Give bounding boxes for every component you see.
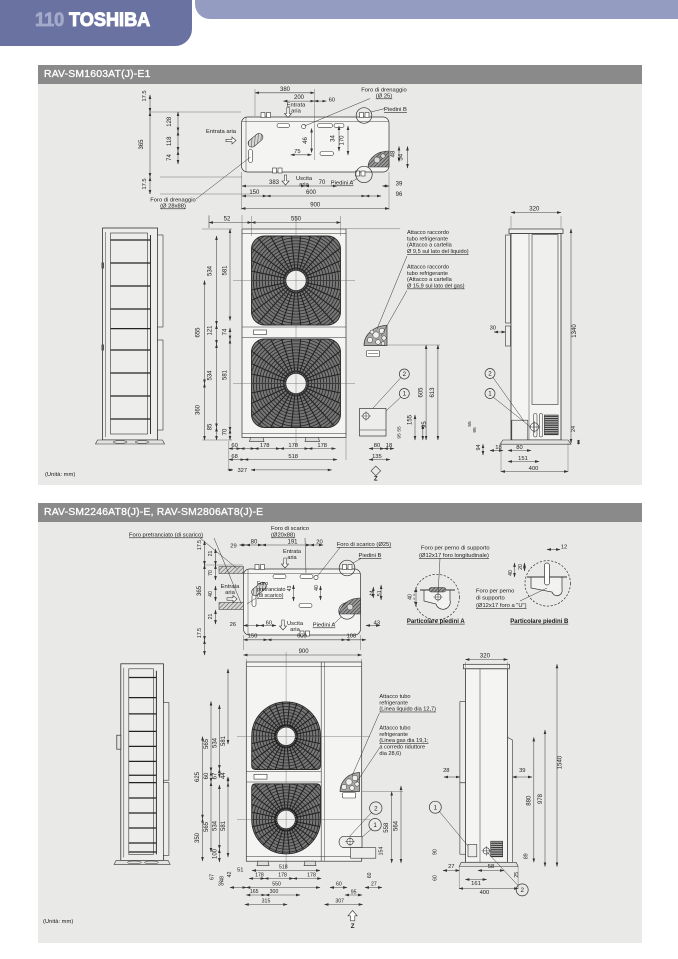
svg-text:581: 581: [222, 265, 228, 276]
svg-text:25: 25: [514, 872, 520, 878]
svg-text:150: 150: [249, 190, 260, 196]
svg-text:17.5: 17.5: [142, 90, 148, 101]
svg-text:315: 315: [262, 899, 271, 905]
svg-text:tubo refrigerante: tubo refrigerante: [407, 271, 448, 277]
svg-text:aria: aria: [290, 627, 300, 633]
svg-text:150: 150: [248, 634, 258, 640]
svg-text:(Unità: mm): (Unità: mm): [43, 919, 73, 925]
svg-text:40: 40: [208, 591, 214, 597]
svg-text:2: 2: [374, 805, 378, 812]
svg-text:165: 165: [250, 889, 259, 895]
svg-text:600: 600: [297, 634, 307, 640]
svg-text:534: 534: [212, 820, 218, 831]
svg-text:27: 27: [371, 882, 377, 888]
svg-text:18: 18: [495, 445, 501, 451]
svg-text:Attacco raccordo: Attacco raccordo: [407, 265, 449, 271]
svg-text:550: 550: [291, 217, 302, 223]
svg-text:Foro per perno: Foro per perno: [476, 589, 514, 595]
svg-text:1: 1: [373, 822, 377, 829]
svg-text:96: 96: [396, 192, 403, 198]
svg-text:80: 80: [374, 443, 380, 449]
svg-text:95: 95: [422, 421, 428, 428]
svg-text:60: 60: [266, 621, 272, 627]
svg-text:tubo refrigerante: tubo refrigerante: [407, 236, 448, 242]
svg-text:178: 178: [278, 873, 287, 879]
svg-text:155: 155: [408, 414, 414, 425]
svg-text:518: 518: [279, 865, 288, 871]
svg-text:581: 581: [221, 735, 227, 746]
svg-text:20: 20: [518, 564, 524, 570]
svg-text:39: 39: [519, 768, 525, 774]
svg-text:40: 40: [314, 585, 320, 591]
svg-text:200: 200: [294, 95, 305, 101]
svg-text:18: 18: [386, 443, 392, 449]
svg-text:Attacco raccordo: Attacco raccordo: [407, 230, 449, 236]
svg-text:360: 360: [196, 404, 202, 415]
svg-text:365: 365: [197, 585, 203, 596]
svg-text:55: 55: [396, 426, 402, 432]
svg-text:900: 900: [310, 203, 321, 209]
svg-text:118: 118: [167, 136, 173, 146]
svg-text:refrigerante: refrigerante: [379, 732, 408, 738]
svg-text:Particolare piedini A: Particolare piedini A: [407, 619, 465, 625]
svg-text:Ø 15,9 sul lato del gas): Ø 15,9 sul lato del gas): [407, 284, 465, 290]
svg-text:154: 154: [378, 847, 384, 856]
svg-text:518: 518: [288, 454, 298, 460]
svg-text:40: 40: [508, 570, 514, 576]
svg-text:94: 94: [476, 445, 482, 451]
svg-text:60: 60: [231, 443, 237, 449]
svg-text:1: 1: [488, 391, 492, 398]
svg-text:613: 613: [430, 387, 436, 398]
svg-text:2: 2: [520, 887, 524, 894]
svg-text:(Linea gas dia 19,1;: (Linea gas dia 19,1;: [379, 738, 429, 744]
svg-text:178: 178: [288, 443, 298, 449]
svg-text:Foro pretranciato (di scarico): Foro pretranciato (di scarico): [129, 533, 203, 539]
svg-text:(Ø 28x88): (Ø 28x88): [160, 204, 186, 210]
svg-text:aria: aria: [299, 182, 309, 188]
svg-text:558: 558: [384, 822, 390, 833]
svg-text:43: 43: [374, 621, 380, 627]
svg-text:900: 900: [299, 649, 310, 655]
svg-text:70: 70: [208, 570, 214, 576]
svg-text:30: 30: [490, 326, 496, 332]
svg-text:80: 80: [251, 539, 258, 545]
svg-text:68: 68: [231, 454, 237, 460]
svg-text:(di scarico): (di scarico): [257, 593, 284, 599]
svg-text:90: 90: [433, 849, 439, 855]
svg-text:1: 1: [434, 804, 438, 811]
svg-text:dia 28,6): dia 28,6): [379, 751, 401, 757]
svg-text:95: 95: [396, 433, 402, 439]
svg-text:(Ø12x17 foro longitudinale): (Ø12x17 foro longitudinale): [419, 553, 489, 559]
svg-text:383: 383: [269, 180, 280, 186]
svg-text:60: 60: [336, 882, 342, 888]
svg-text:Foro di scarico: Foro di scarico: [271, 526, 309, 532]
svg-text:aria: aria: [225, 590, 235, 596]
svg-text:70: 70: [222, 428, 228, 435]
svg-text:58: 58: [488, 864, 494, 870]
svg-text:191: 191: [287, 539, 298, 545]
svg-text:54: 54: [399, 153, 405, 160]
svg-text:170: 170: [340, 135, 346, 146]
svg-text:(Linea liquido dia 12,7): (Linea liquido dia 12,7): [379, 707, 436, 713]
svg-text:655: 655: [196, 327, 202, 338]
svg-text:1: 1: [403, 391, 407, 398]
svg-text:74: 74: [167, 154, 173, 161]
svg-text:60: 60: [329, 97, 335, 103]
svg-text:151: 151: [518, 456, 528, 462]
svg-text:108: 108: [347, 634, 357, 640]
svg-text:(Unità: mm): (Unità: mm): [45, 472, 75, 478]
svg-text:400: 400: [480, 890, 490, 896]
svg-text:67: 67: [210, 874, 216, 880]
svg-text:refrigerante: refrigerante: [379, 700, 408, 706]
svg-text:565: 565: [204, 738, 210, 749]
svg-text:178: 178: [317, 443, 327, 449]
svg-text:26: 26: [230, 622, 236, 628]
svg-text:48: 48: [391, 150, 397, 157]
svg-text:625: 625: [195, 771, 201, 782]
svg-text:300: 300: [270, 889, 279, 895]
svg-text:85: 85: [208, 423, 214, 430]
svg-text:600: 600: [306, 190, 317, 196]
svg-text:178: 178: [307, 873, 316, 879]
svg-text:327: 327: [237, 468, 247, 474]
svg-text:(Attacco a cartella: (Attacco a cartella: [407, 243, 453, 249]
svg-text:Piedini A: Piedini A: [331, 181, 354, 187]
svg-text:320: 320: [480, 654, 491, 660]
svg-text:Z: Z: [374, 476, 378, 483]
svg-text:a corredo riduttore: a corredo riduttore: [379, 745, 425, 751]
svg-text:67: 67: [212, 772, 218, 779]
svg-text:400: 400: [529, 466, 539, 472]
svg-text:1540: 1540: [558, 755, 564, 769]
svg-text:320: 320: [529, 207, 540, 213]
svg-text:161: 161: [471, 881, 481, 887]
svg-text:89: 89: [524, 853, 530, 859]
svg-text:Foro per perno di supporto: Foro per perno di supporto: [421, 546, 490, 552]
svg-text:605: 605: [418, 387, 424, 398]
svg-text:51: 51: [237, 868, 243, 874]
svg-text:880: 880: [527, 795, 533, 806]
svg-text:350: 350: [195, 832, 201, 843]
svg-text:51: 51: [377, 590, 383, 596]
svg-text:55: 55: [467, 421, 473, 427]
svg-text:(Attacco a cartella: (Attacco a cartella: [407, 277, 453, 283]
svg-text:(Ø20x88): (Ø20x88): [271, 533, 295, 539]
svg-text:Attacco tubo: Attacco tubo: [379, 726, 410, 732]
svg-text:43: 43: [287, 586, 293, 592]
svg-text:20: 20: [316, 539, 322, 545]
svg-text:(Ø 25): (Ø 25): [376, 94, 392, 100]
svg-text:42: 42: [227, 872, 233, 878]
svg-text:Particolare piedini B: Particolare piedini B: [510, 619, 569, 625]
svg-text:52: 52: [224, 217, 231, 223]
svg-text:Z: Z: [351, 923, 355, 930]
svg-text:2: 2: [488, 371, 492, 378]
svg-text:307: 307: [335, 899, 344, 905]
svg-text:550: 550: [272, 882, 281, 888]
svg-text:534: 534: [208, 265, 214, 276]
svg-text:Piedini B: Piedini B: [384, 107, 407, 113]
svg-text:365: 365: [139, 139, 145, 150]
svg-text:80: 80: [516, 445, 522, 451]
svg-text:178: 178: [260, 443, 270, 449]
svg-text:34: 34: [331, 135, 337, 142]
svg-text:17.5: 17.5: [197, 540, 203, 550]
svg-text:100: 100: [212, 848, 218, 859]
svg-text:95: 95: [472, 427, 478, 433]
svg-text:27: 27: [448, 864, 454, 870]
svg-text:534: 534: [212, 737, 218, 748]
svg-text:70: 70: [319, 180, 326, 186]
svg-text:74: 74: [222, 328, 228, 335]
svg-text:44: 44: [221, 772, 227, 779]
svg-text:75: 75: [294, 149, 300, 155]
svg-text:564: 564: [394, 820, 400, 831]
svg-text:di supporto: di supporto: [476, 596, 505, 602]
svg-text:1340: 1340: [572, 324, 578, 338]
svg-text:29: 29: [230, 544, 236, 550]
svg-text:aria: aria: [287, 555, 297, 561]
svg-text:380: 380: [280, 87, 291, 93]
svg-text:Entrata aria: Entrata aria: [206, 129, 237, 135]
svg-text:178: 178: [255, 873, 264, 879]
svg-text:Attacco tubo: Attacco tubo: [379, 694, 410, 700]
svg-text:128: 128: [167, 116, 173, 127]
svg-text:581: 581: [221, 820, 227, 831]
svg-text:39: 39: [396, 182, 403, 188]
svg-text:60: 60: [204, 772, 210, 779]
svg-text:135: 135: [372, 454, 382, 460]
svg-text:40: 40: [408, 594, 414, 600]
svg-text:aria: aria: [291, 109, 301, 115]
svg-text:Piedini A: Piedini A: [313, 623, 336, 629]
svg-text:46: 46: [303, 137, 309, 144]
svg-text:12: 12: [561, 545, 567, 551]
svg-text:24: 24: [571, 426, 577, 432]
svg-text:21: 21: [208, 614, 214, 620]
svg-text:17.5: 17.5: [197, 628, 203, 638]
svg-text:60: 60: [433, 875, 439, 881]
svg-text:534: 534: [208, 370, 214, 381]
svg-text:Ø 9,5 sul lato del liquido): Ø 9,5 sul lato del liquido): [407, 249, 469, 255]
svg-text:581: 581: [222, 369, 228, 380]
svg-text:Foro di scarico (Ø25): Foro di scarico (Ø25): [337, 542, 392, 548]
svg-text:28: 28: [443, 768, 449, 774]
svg-text:17.5: 17.5: [142, 178, 148, 189]
svg-text:21: 21: [208, 551, 214, 557]
svg-text:978: 978: [538, 793, 544, 804]
svg-text:(Ø12x17 foro a "U"): (Ø12x17 foro a "U"): [476, 603, 527, 609]
svg-text:95: 95: [351, 889, 357, 895]
svg-text:121: 121: [208, 325, 214, 336]
svg-text:2: 2: [403, 371, 407, 378]
svg-text:565: 565: [204, 821, 210, 832]
svg-text:35: 35: [218, 882, 224, 888]
svg-text:44: 44: [369, 590, 375, 596]
svg-text:60: 60: [367, 872, 373, 878]
svg-text:Piedini B: Piedini B: [359, 553, 382, 559]
